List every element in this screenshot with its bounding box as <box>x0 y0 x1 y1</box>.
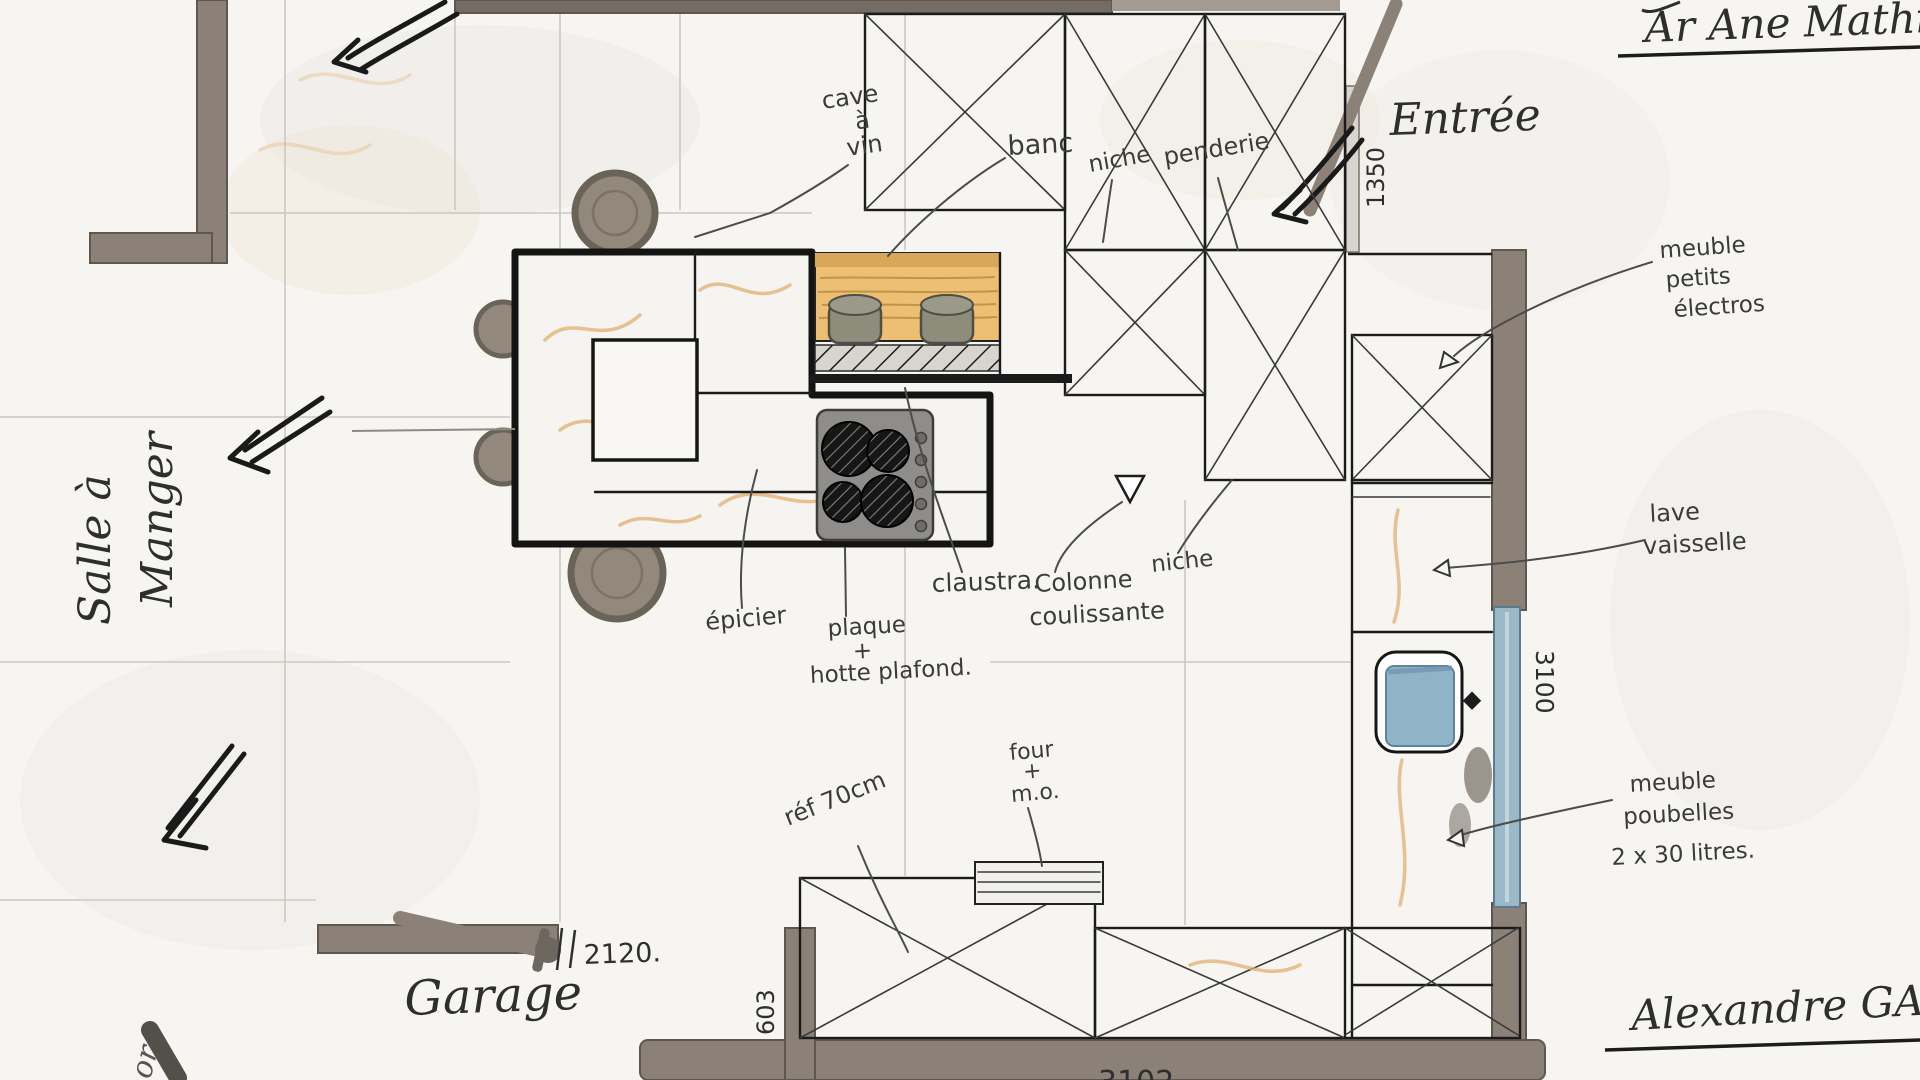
label-poubelles: meuble <box>1629 767 1717 797</box>
wall-top-light <box>1112 0 1340 11</box>
label-lave-vaisselle: lave <box>1649 497 1701 528</box>
stool <box>921 295 973 343</box>
nook-wall-line <box>810 374 1072 383</box>
dim-2120: 2120. <box>583 937 661 971</box>
leader-plaque <box>845 548 846 616</box>
burner <box>861 475 913 527</box>
svg-text:Manger: Manger <box>132 429 183 608</box>
dim-1350: 1350 <box>1362 147 1390 208</box>
label-electros: petits <box>1665 263 1732 293</box>
wall-top-left-vertical <box>197 0 227 263</box>
wall-bottom <box>640 1040 1545 1080</box>
burner <box>867 430 909 472</box>
label-four-mo: m.o. <box>1010 779 1060 808</box>
label-banc: banc <box>1007 128 1074 162</box>
label-claustra: claustra. <box>931 565 1040 598</box>
wall-right-upper <box>1492 250 1526 610</box>
label-lave-vaisselle: vaisselle <box>1643 527 1748 560</box>
label-colonne: Colonne <box>1034 565 1133 598</box>
dim-3100: 3100 <box>1530 650 1559 714</box>
svg-text:Salle à: Salle à <box>70 474 121 625</box>
dim-603: 603 <box>752 989 780 1035</box>
floor-plan-sketch: cave à vin banc niche penderie Entrée me… <box>0 0 1920 1080</box>
claustra-screen <box>815 345 1000 371</box>
stool <box>829 295 881 343</box>
shadow-smudge <box>1464 747 1492 803</box>
wall-top <box>455 0 1112 13</box>
four-mo-unit <box>975 862 1103 904</box>
label-garage: Garage <box>403 965 583 1027</box>
label-cave-a-vin: vin <box>845 129 885 162</box>
burner <box>823 482 863 522</box>
wall-top-left-horizontal <box>90 233 212 263</box>
island-table-inset <box>593 340 697 460</box>
label-entree: Entrée <box>1388 90 1542 146</box>
chair <box>575 173 655 253</box>
dim-3102: 3102 <box>1098 1065 1174 1080</box>
